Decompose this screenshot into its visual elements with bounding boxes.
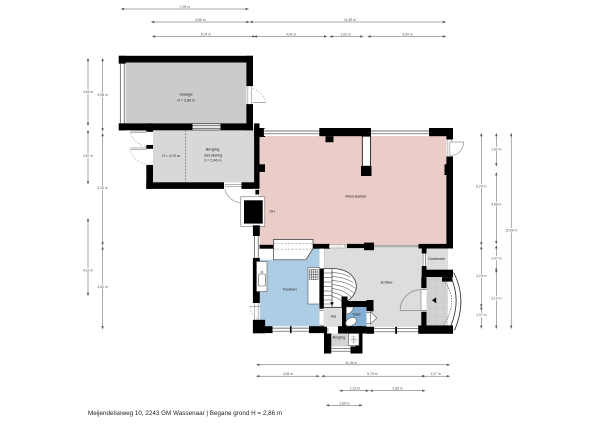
svg-text:H = 4,70 m: H = 4,70 m <box>162 154 180 158</box>
svg-text:1,80 m: 1,80 m <box>339 401 350 405</box>
svg-text:Woonkamer: Woonkamer <box>345 194 367 199</box>
svg-text:1,97 m: 1,97 m <box>476 313 487 317</box>
svg-text:Toilet: Toilet <box>352 313 360 317</box>
svg-text:Meijendelseweg 10, 2243 GM Was: Meijendelseweg 10, 2243 GM Wassenaar | B… <box>88 410 282 417</box>
svg-text:7,09 m: 7,09 m <box>180 5 191 9</box>
svg-text:11,59 m: 11,59 m <box>344 18 356 22</box>
svg-text:3,16 m: 3,16 m <box>491 297 502 301</box>
svg-text:1,47 m: 1,47 m <box>491 257 502 261</box>
svg-text:6,25 m: 6,25 m <box>97 186 108 190</box>
svg-text:3,88 m: 3,88 m <box>491 203 502 207</box>
svg-text:2,86 m: 2,86 m <box>392 387 403 391</box>
svg-text:10,54 m: 10,54 m <box>505 229 517 233</box>
svg-text:Hal: Hal <box>331 315 337 319</box>
svg-text:Berging: Berging <box>206 146 220 151</box>
svg-text:1,19 m: 1,19 m <box>350 387 361 391</box>
svg-text:4,54 m: 4,54 m <box>402 33 413 37</box>
svg-text:Garage: Garage <box>179 92 193 97</box>
svg-text:3,25 m: 3,25 m <box>476 274 487 278</box>
svg-text:h = 2,46 m: h = 2,46 m <box>204 158 221 162</box>
svg-text:OH: OH <box>270 210 276 214</box>
svg-text:Garderobe: Garderobe <box>428 257 445 261</box>
svg-text:Entree: Entree <box>381 280 394 285</box>
svg-text:H = 2,86 m: H = 2,86 m <box>177 98 195 102</box>
svg-text:3,98 m: 3,98 m <box>97 93 108 97</box>
svg-text:3,64 m: 3,64 m <box>83 90 94 94</box>
svg-text:4,22 m: 4,22 m <box>83 269 94 273</box>
svg-text:Keuken: Keuken <box>283 287 297 292</box>
svg-text:met vliering: met vliering <box>204 154 222 158</box>
svg-text:11,05 m: 11,05 m <box>345 361 357 365</box>
svg-text:1,03 m: 1,03 m <box>340 33 351 37</box>
svg-text:6,25 m: 6,25 m <box>476 185 487 189</box>
svg-text:5,75 m: 5,75 m <box>367 372 378 376</box>
svg-text:4,04 m: 4,04 m <box>286 33 297 37</box>
svg-text:5,74 m: 5,74 m <box>201 33 212 37</box>
svg-text:5,55 m: 5,55 m <box>195 18 206 22</box>
svg-text:2,87 m: 2,87 m <box>83 154 94 158</box>
svg-text:Berging: Berging <box>333 336 345 340</box>
svg-text:1,62 m: 1,62 m <box>491 147 502 151</box>
svg-text:3,38 m: 3,38 m <box>283 372 294 376</box>
svg-text:4,52 m: 4,52 m <box>97 285 108 289</box>
svg-text:1,07 m: 1,07 m <box>430 372 441 376</box>
